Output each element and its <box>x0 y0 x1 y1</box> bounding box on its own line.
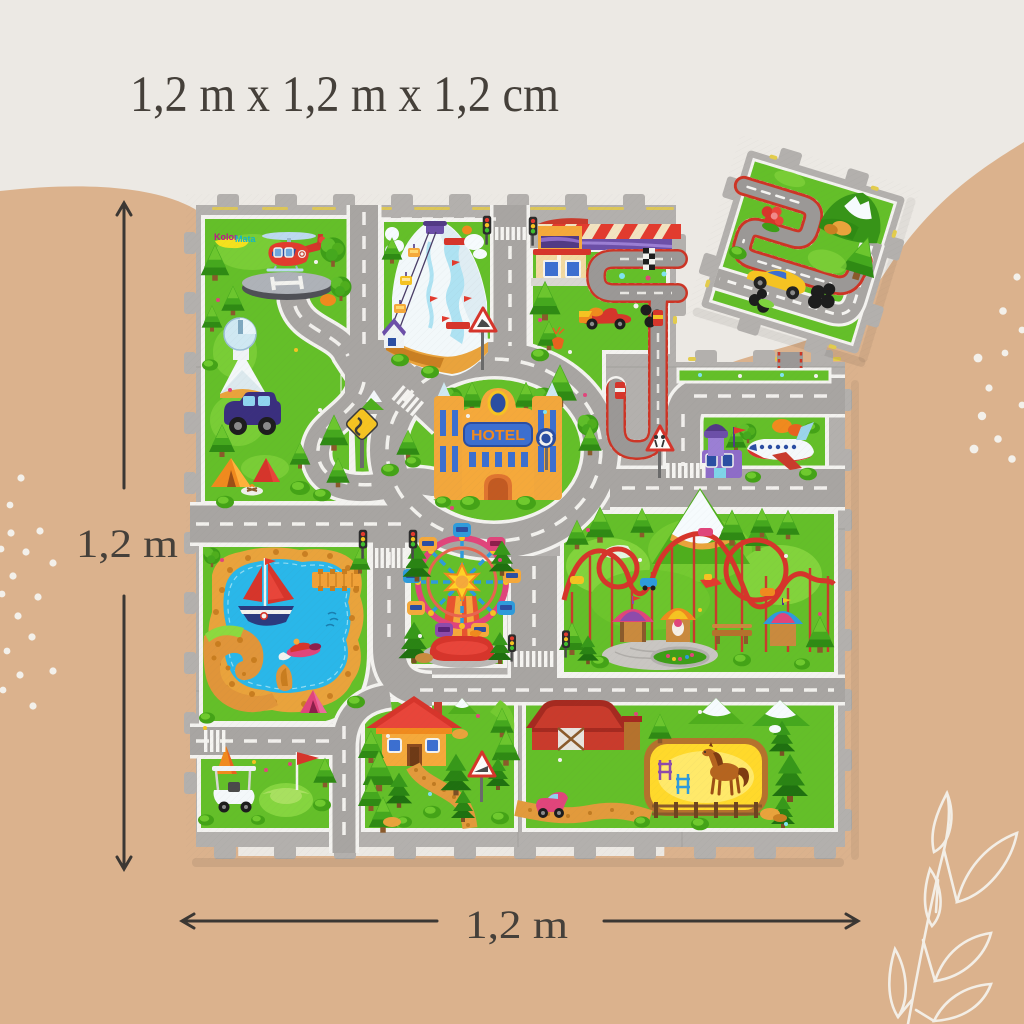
svg-text:1,2 m: 1,2 m <box>465 902 568 947</box>
svg-text:1,2 m: 1,2 m <box>76 521 178 566</box>
svg-text:1,2 m x 1,2 m x 1,2 cm: 1,2 m x 1,2 m x 1,2 cm <box>130 67 559 123</box>
